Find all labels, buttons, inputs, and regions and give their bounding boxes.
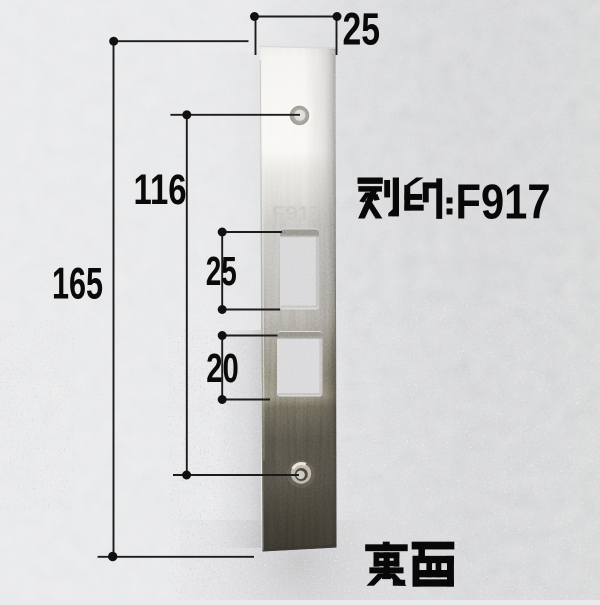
svg-text:116: 116 (134, 167, 187, 214)
svg-text:20: 20 (206, 345, 239, 391)
svg-text:25: 25 (206, 248, 237, 294)
svg-text:165: 165 (52, 259, 103, 308)
svg-text:F917: F917 (456, 175, 551, 230)
svg-text:25: 25 (343, 4, 381, 55)
